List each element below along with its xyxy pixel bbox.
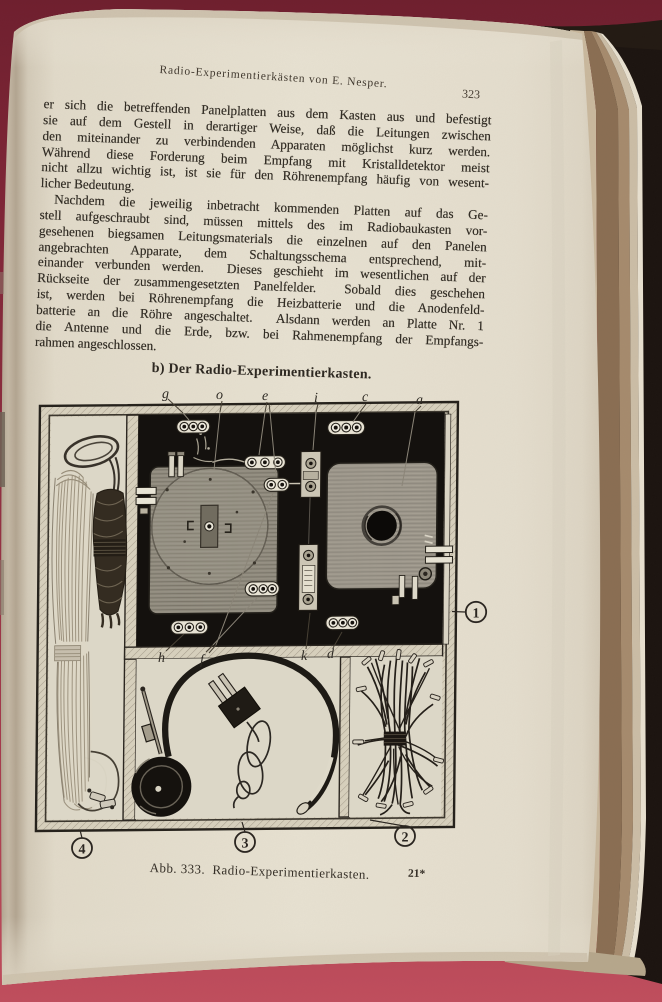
svg-text:e: e	[262, 389, 268, 404]
svg-text:4: 4	[79, 843, 86, 858]
svg-text:d: d	[327, 647, 335, 662]
svg-text:i: i	[314, 391, 318, 406]
svg-text:3: 3	[242, 837, 249, 852]
svg-text:k: k	[301, 649, 308, 664]
svg-text:a: a	[416, 393, 423, 408]
svg-text:o: o	[216, 388, 223, 403]
svg-text:h: h	[158, 651, 165, 666]
svg-text:g: g	[162, 387, 169, 402]
svg-text:2: 2	[402, 831, 409, 846]
svg-text:c: c	[362, 390, 369, 405]
svg-text:1: 1	[473, 607, 480, 622]
